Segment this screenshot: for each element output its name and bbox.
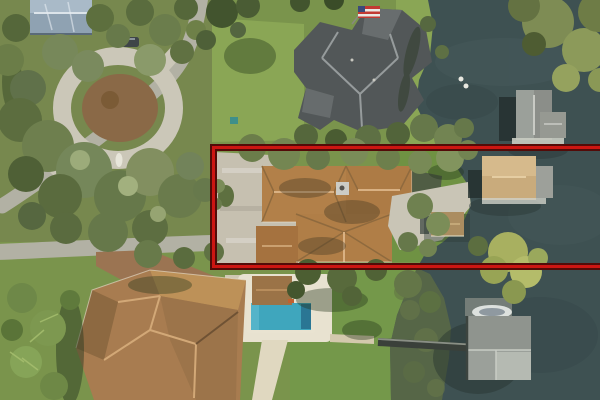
mulch-island [82, 74, 158, 142]
boat-slip-shadow [499, 97, 517, 141]
pool-steps [251, 303, 259, 330]
lawn-chair-2 [464, 84, 469, 89]
orange-lounge-chair [288, 299, 294, 303]
house-blue-roof [30, 0, 92, 34]
aerial-photo-stage [0, 0, 600, 400]
dock-edge [482, 198, 546, 204]
lawn-top-center [212, 18, 304, 142]
aerial-photo [0, 0, 600, 400]
garden-statue [116, 153, 123, 167]
teal-yard-object [230, 117, 238, 124]
mulch-texture [101, 91, 119, 109]
lawn-chair-1 [459, 77, 464, 82]
boat-slip-shadow [468, 170, 482, 198]
